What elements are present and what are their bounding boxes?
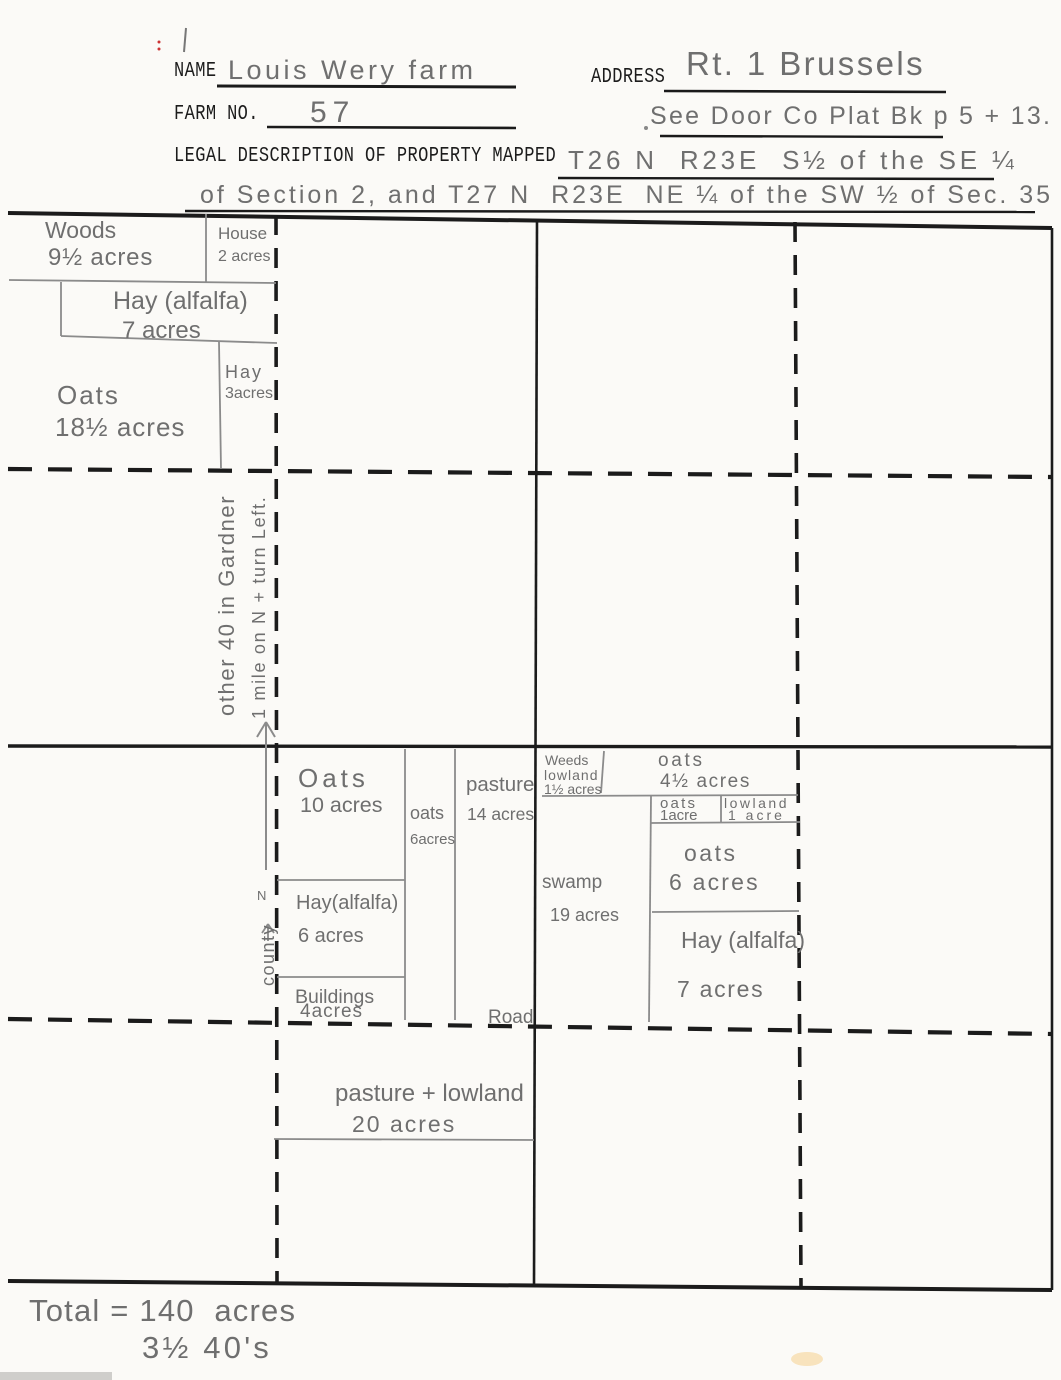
svg-text:other 40 in Gardner: other 40 in Gardner bbox=[214, 495, 239, 716]
svg-text:county: county bbox=[258, 924, 278, 986]
svg-text:1 mile on N + turn Left.: 1 mile on N + turn Left. bbox=[249, 496, 269, 719]
